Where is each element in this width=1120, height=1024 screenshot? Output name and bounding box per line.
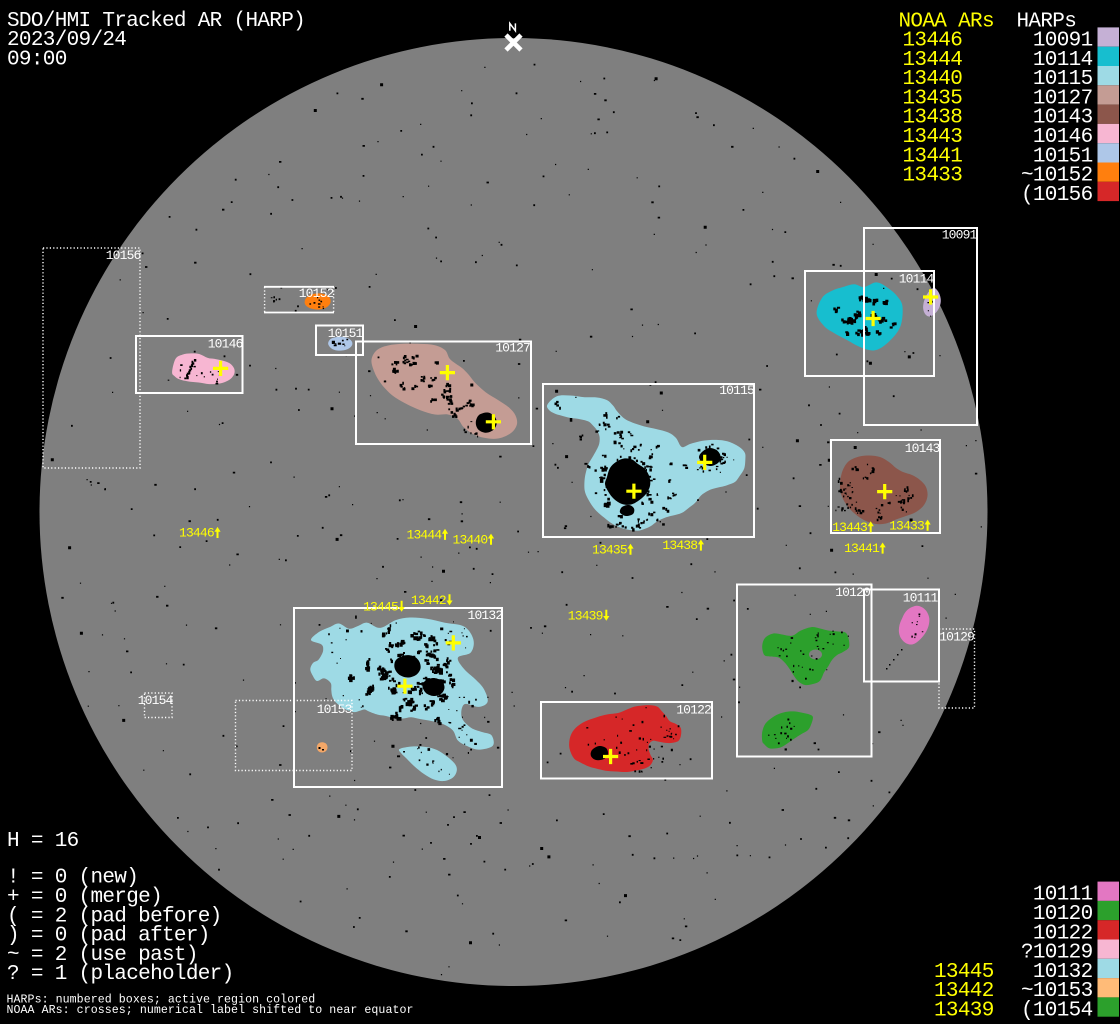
svg-text:NOAA ARs: crosses; numerical l: NOAA ARs: crosses; numerical label shift… xyxy=(7,1004,414,1017)
svg-text:13433: 13433 xyxy=(903,165,963,188)
svg-text:13435: 13435 xyxy=(592,542,627,557)
svg-text:10151: 10151 xyxy=(328,326,364,341)
svg-text:10129: 10129 xyxy=(939,630,974,645)
svg-text:H = 16: H = 16 xyxy=(7,830,79,853)
svg-text:13445: 13445 xyxy=(363,599,398,614)
svg-text:10091: 10091 xyxy=(942,228,978,243)
svg-text:13440: 13440 xyxy=(453,532,488,547)
svg-text:10154: 10154 xyxy=(138,693,174,708)
svg-text:09:00: 09:00 xyxy=(7,49,67,72)
svg-text:10132: 10132 xyxy=(467,608,502,623)
svg-text:13442: 13442 xyxy=(411,593,446,608)
svg-text:10120: 10120 xyxy=(835,585,870,600)
svg-text:? = 1 (placeholder): ? = 1 (placeholder) xyxy=(7,963,234,986)
svg-text:10146: 10146 xyxy=(208,337,243,352)
svg-text:10122: 10122 xyxy=(676,702,711,717)
svg-text:13444: 13444 xyxy=(407,528,443,543)
svg-text:13438: 13438 xyxy=(662,538,697,553)
svg-text:10143: 10143 xyxy=(905,441,940,456)
svg-text:13446: 13446 xyxy=(179,526,214,541)
svg-text:13439: 13439 xyxy=(568,608,603,623)
svg-text:(10154: (10154 xyxy=(1021,1000,1093,1023)
svg-text:13433: 13433 xyxy=(889,518,924,533)
svg-text:13441: 13441 xyxy=(844,541,880,556)
svg-text:10115: 10115 xyxy=(719,383,754,398)
svg-text:10156: 10156 xyxy=(106,248,141,263)
svg-text:(10156: (10156 xyxy=(1021,184,1093,207)
svg-text:10152: 10152 xyxy=(299,286,334,301)
svg-text:13443: 13443 xyxy=(832,520,867,535)
svg-text:10153: 10153 xyxy=(317,702,352,717)
svg-text:13439: 13439 xyxy=(934,1000,994,1023)
svg-text:10114: 10114 xyxy=(899,271,935,286)
svg-text:10111: 10111 xyxy=(903,590,939,605)
svg-text:10127: 10127 xyxy=(495,341,530,356)
